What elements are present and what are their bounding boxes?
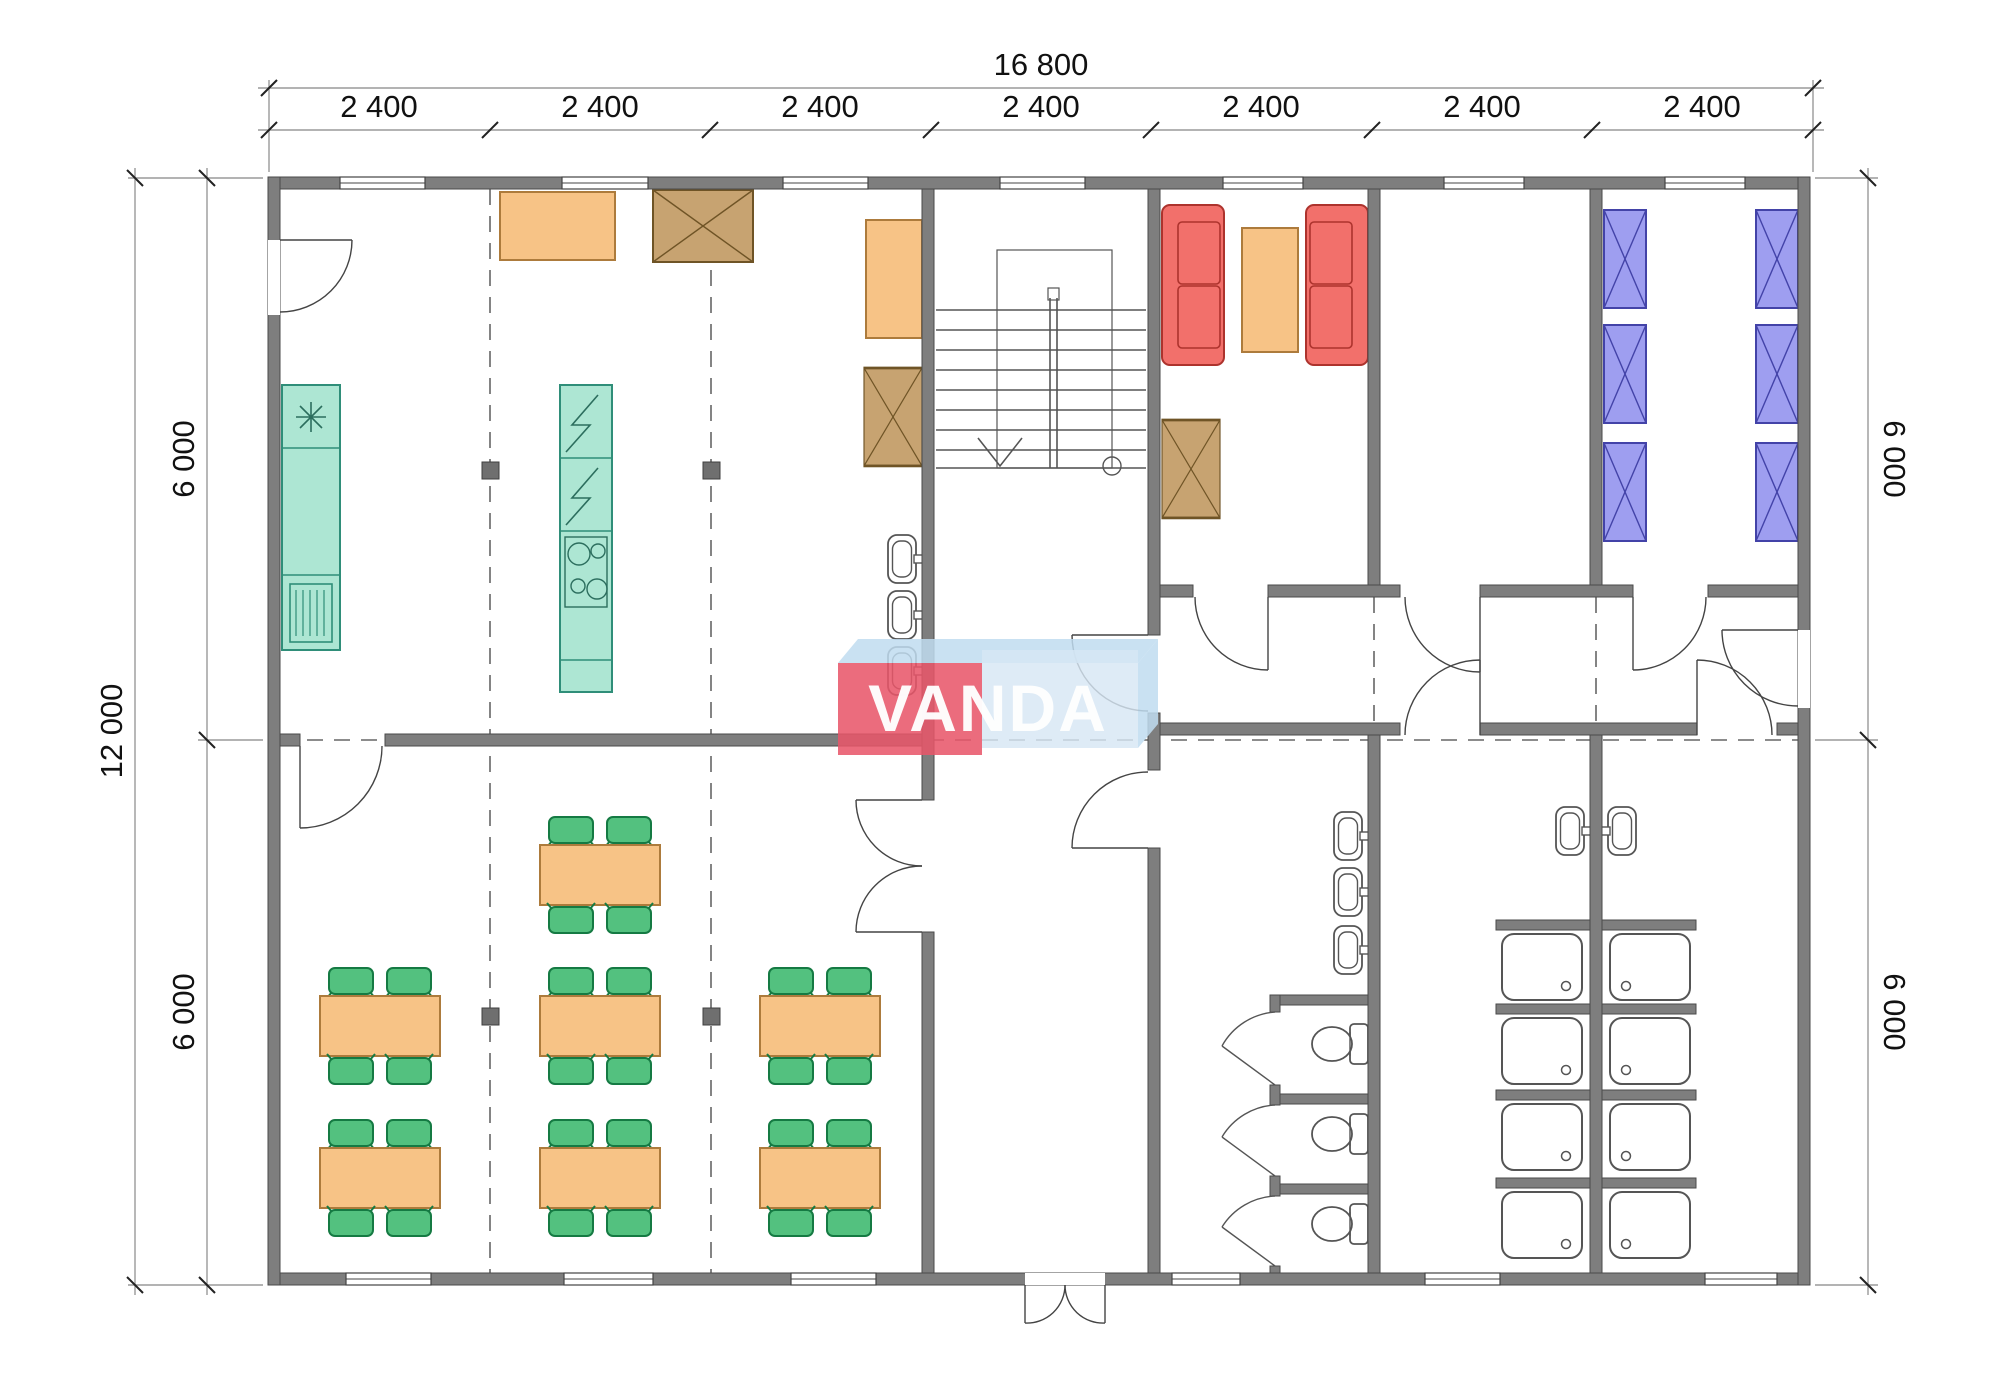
bay-dimension: 2 400 [1443,89,1521,124]
bed [1604,443,1646,541]
shower-cubicle [1610,1192,1690,1258]
toilet-icon [1312,1024,1368,1064]
bed [1756,210,1798,308]
dining-table [540,968,660,1084]
shower-cubicle [1610,934,1690,1000]
bay-dimension: 2 400 [1222,89,1300,124]
toilet-icon [1312,1204,1368,1244]
kitchen-counter-sink-unit [282,385,340,650]
kitchen-worktable [500,192,615,260]
shower-cubicle [1610,1104,1690,1170]
shower-cubicle [1610,1018,1690,1084]
bed [1756,325,1798,423]
shower-cubicle [1502,1192,1582,1258]
window [340,177,425,189]
washbasin-icon [1334,868,1369,916]
dining-table [320,968,440,1084]
left-segment-dimension: 6 000 [166,973,201,1051]
hob-burst-icon [296,402,326,432]
bay-dimension: 2 400 [1663,89,1741,124]
bay-dimension: 2 400 [561,89,639,124]
lounge-furniture [1162,205,1368,518]
washbasin-icon [1556,807,1591,855]
dormitory-beds [1604,210,1798,541]
kitchen-fixtures [282,190,923,695]
stall-doors [1222,1012,1275,1266]
toilet-icon [1312,1114,1368,1154]
lounge-wardrobe [1162,420,1220,518]
bay-dimension: 2 400 [781,89,859,124]
bay-dimension: 2 400 [1002,89,1080,124]
kitchen-side-table [866,220,922,338]
exterior-wall-left [268,177,280,1285]
shower-cubicle [1502,934,1582,1000]
left-segment-dimension: 6 000 [166,420,201,498]
washbasin-icon [1601,807,1636,855]
floor-plan-canvas: 16 800 2 400 2 400 2 400 2 400 2 400 2 4… [0,0,2000,1380]
staircase [936,250,1146,475]
washbasin-icon [1334,812,1369,860]
dining-table [760,1120,880,1236]
sofa [1306,205,1368,365]
vanda-watermark: VANDA [838,639,1158,755]
sofa [1162,205,1224,365]
washbasin-icon [888,535,923,583]
dining-table [540,1120,660,1236]
shower-cubicle [1502,1104,1582,1170]
shower-cubicle [1502,1018,1582,1084]
kitchen-side-wardrobe [864,368,922,466]
overall-width-dimension: 16 800 [994,47,1089,82]
washroom-fixtures [1222,812,1369,1273]
dining-table [760,968,880,1084]
coffee-table [1242,228,1298,352]
fridge-stove-unit [560,385,612,692]
washbasin-icon [888,591,923,639]
floor-plan-drawing: 16 800 2 400 2 400 2 400 2 400 2 400 2 4… [0,0,2000,1380]
bed [1604,325,1646,423]
right-segment-dimension: 6 000 [1877,420,1912,498]
bed [1756,443,1798,541]
kitchen-wardrobe [653,190,753,262]
watermark-text: VANDA [868,671,1108,745]
bed [1604,210,1646,308]
washbasin-icon [1334,926,1369,974]
dining-tables-and-chairs [320,817,880,1236]
dining-table [540,817,660,933]
dining-table [320,1120,440,1236]
bay-dimension: 2 400 [340,89,418,124]
stair-direction-arrow-icon [978,438,1022,466]
overall-height-dimension: 12 000 [94,684,129,779]
door-swing [280,240,352,312]
right-segment-dimension: 6 000 [1877,973,1912,1051]
exterior-wall-right [1798,177,1810,1285]
